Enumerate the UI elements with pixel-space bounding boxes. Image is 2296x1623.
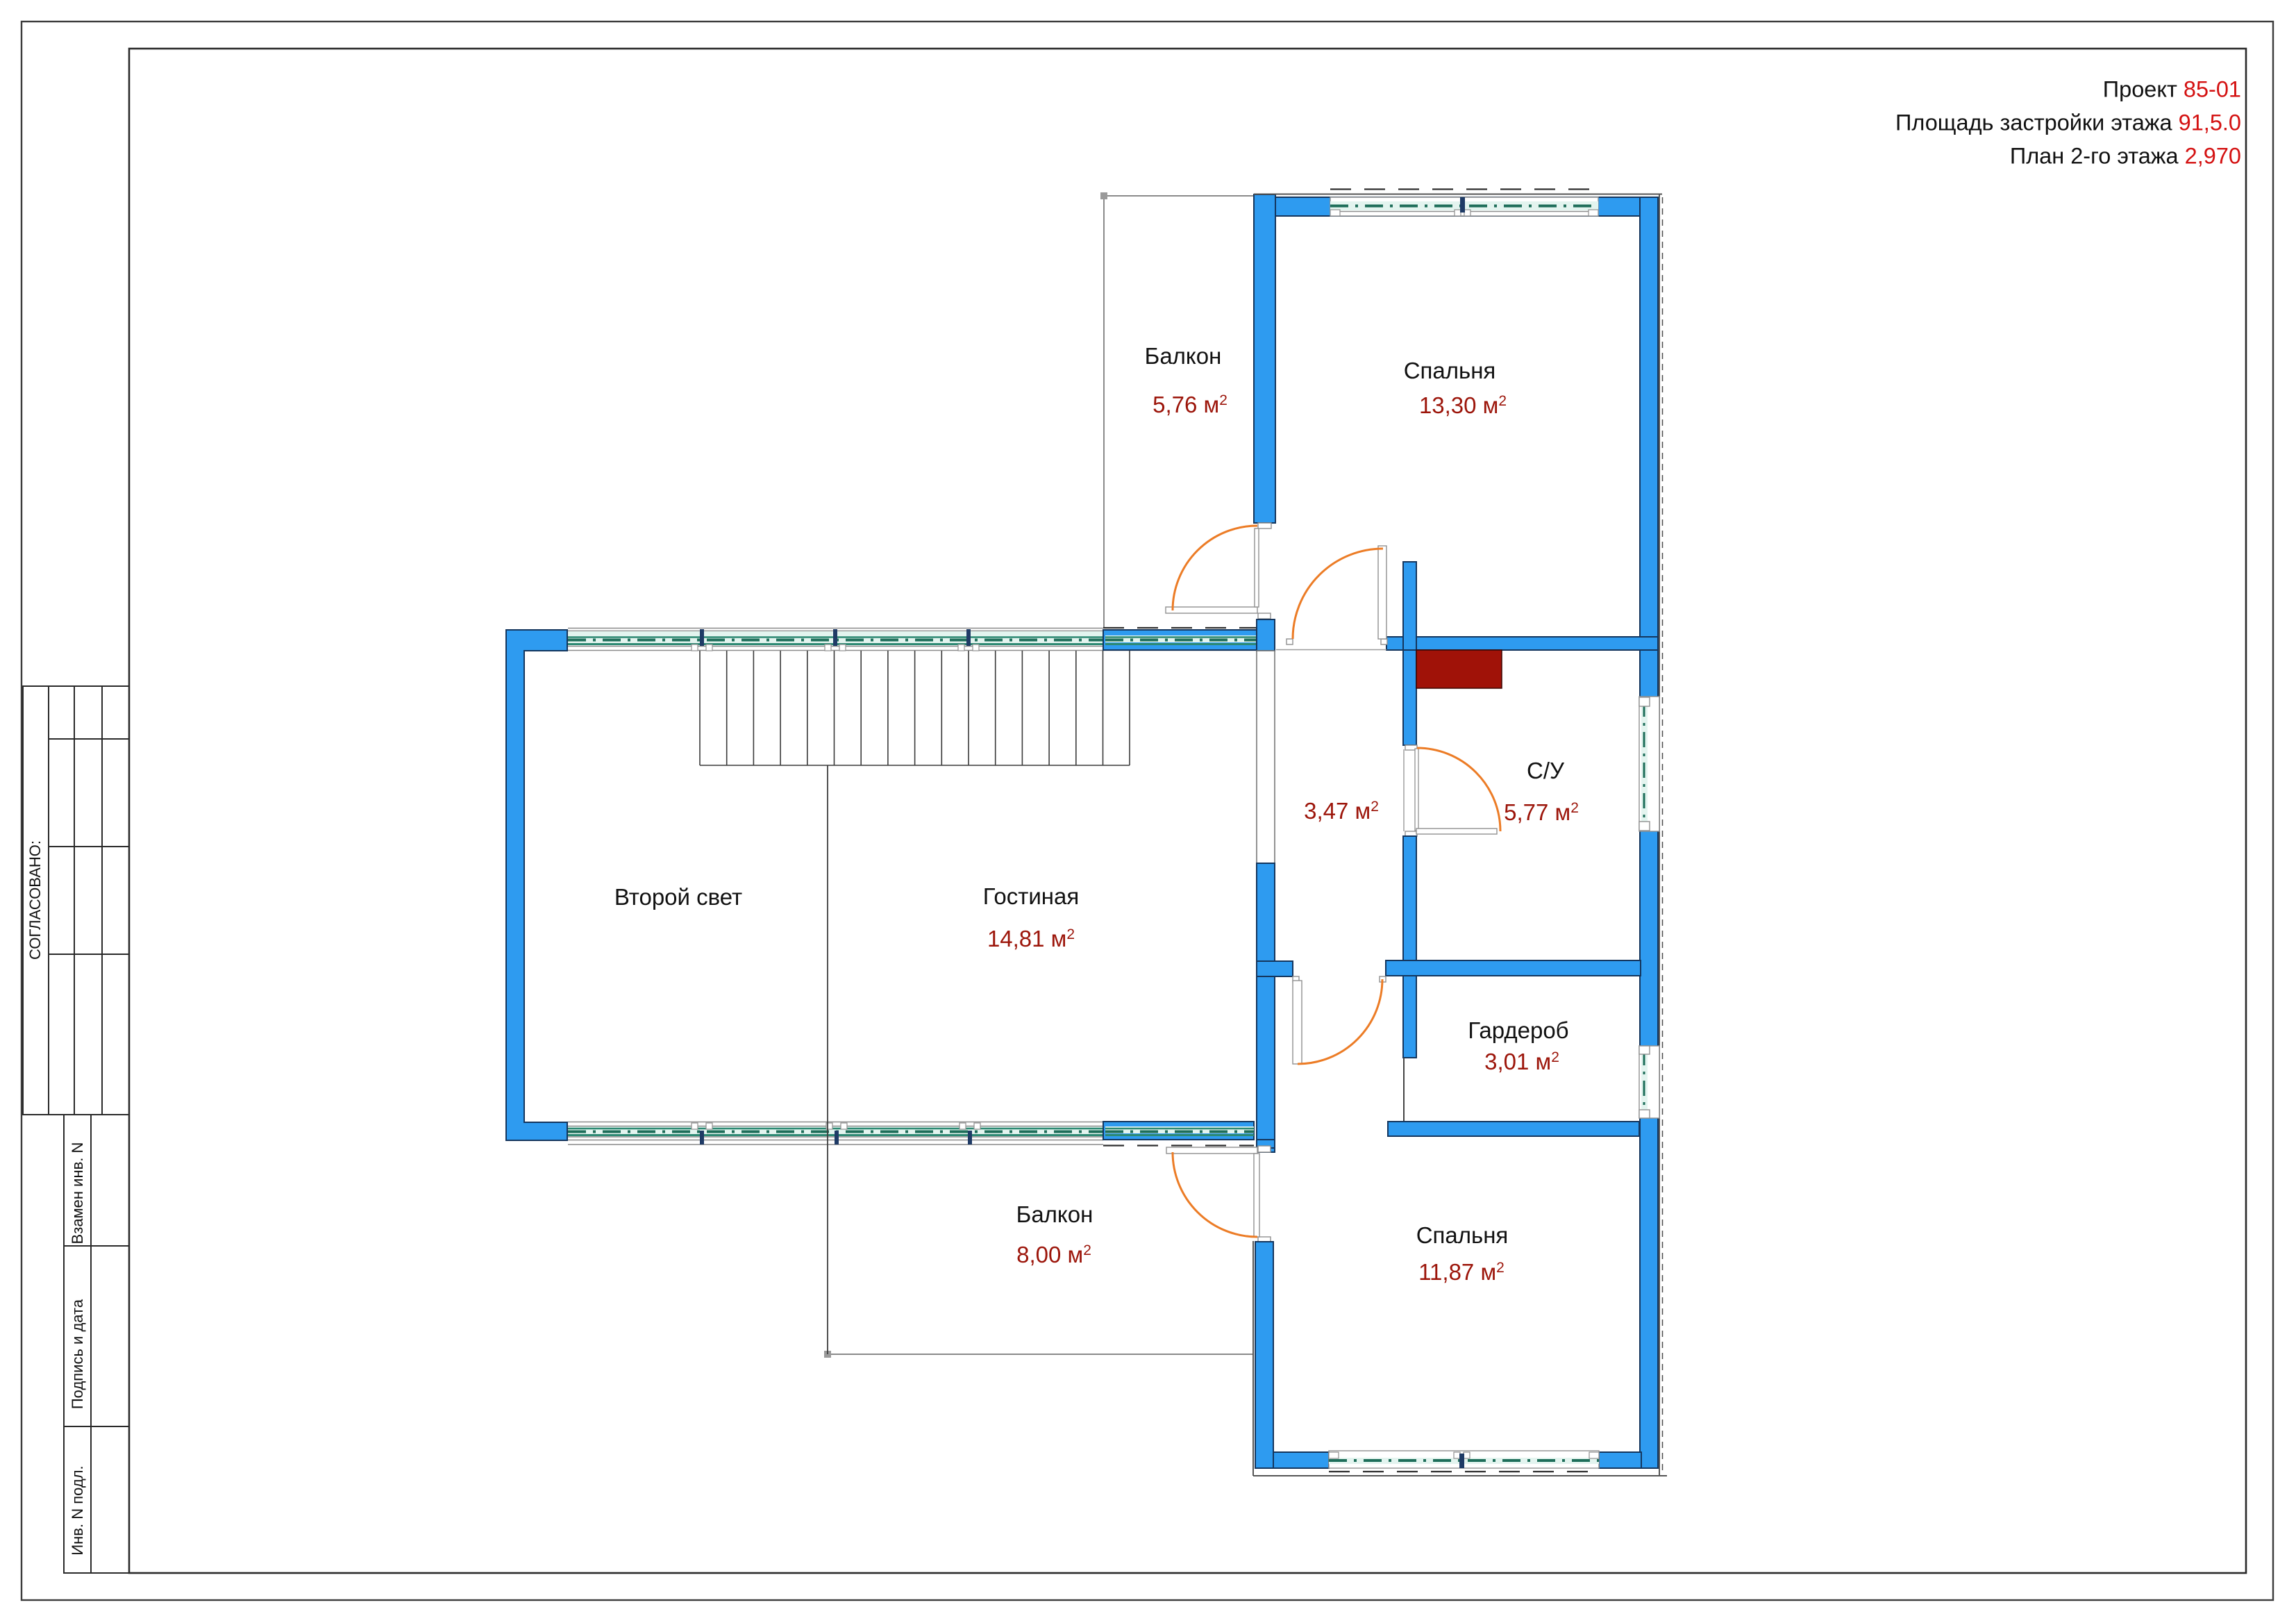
svg-text:Взамен инв. N: Взамен инв. N [69,1142,86,1245]
svg-text:План 2-го этажа 2,970: План 2-го этажа 2,970 [2010,144,2241,169]
svg-text:8,00 м2: 8,00 м2 [1016,1242,1091,1267]
svg-text:Спальня: Спальня [1404,358,1496,383]
svg-text:Подпись и дата: Подпись и дата [69,1299,86,1409]
svg-text:14,81 м2: 14,81 м2 [987,926,1075,951]
svg-text:3,01 м2: 3,01 м2 [1484,1049,1559,1074]
svg-text:13,30 м2: 13,30 м2 [1419,392,1507,418]
svg-text:Гостиная: Гостиная [983,883,1080,909]
svg-text:Балкон: Балкон [1145,343,1222,369]
svg-text:Балкон: Балкон [1016,1201,1093,1227]
svg-text:Площадь застройки этажа 91,5.0: Площадь застройки этажа 91,5.0 [1895,110,2241,135]
svg-text:Второй свет: Второй свет [614,884,742,910]
svg-text:11,87 м2: 11,87 м2 [1418,1259,1505,1285]
svg-text:5,77 м2: 5,77 м2 [1504,799,1579,825]
svg-text:С/У: С/У [1527,758,1565,783]
svg-text:3,47 м2: 3,47 м2 [1304,798,1379,824]
svg-text:5,76 м2: 5,76 м2 [1153,392,1227,417]
svg-text:Проект 85-01: Проект 85-01 [2103,77,2241,102]
svg-text:Инв. N подл.: Инв. N подл. [69,1465,86,1555]
svg-text:СОГЛАСОВАНО:: СОГЛАСОВАНО: [26,840,44,960]
svg-text:Спальня: Спальня [1416,1222,1509,1248]
svg-text:Гардероб: Гардероб [1468,1017,1568,1043]
